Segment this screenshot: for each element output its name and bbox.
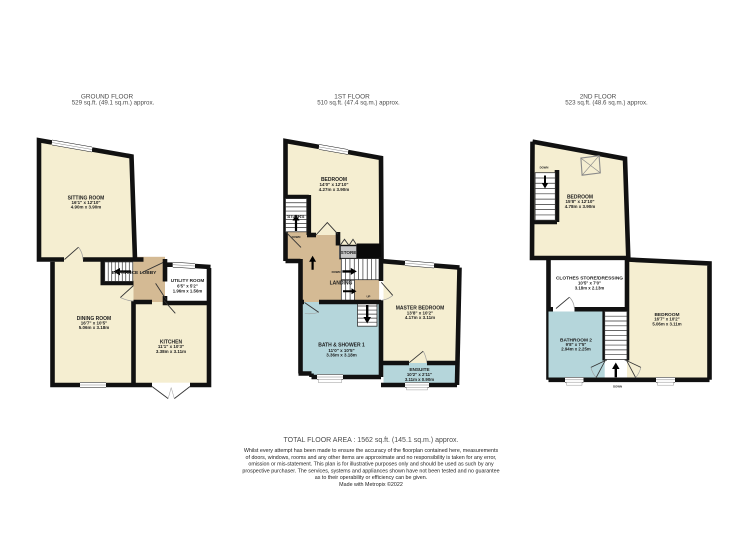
svg-text:ENTRANCE LOBBY: ENTRANCE LOBBY [112, 270, 158, 276]
svg-text:4.17m x 3.11m: 4.17m x 3.11m [405, 315, 435, 320]
svg-text:Whilst every attempt has been: Whilst every attempt has been made to en… [244, 448, 499, 454]
svg-text:3.38m x 3.11m: 3.38m x 3.11m [156, 349, 186, 354]
svg-text:UTILITY ROOM: UTILITY ROOM [171, 278, 205, 283]
svg-text:DOWN: DOWN [332, 270, 341, 274]
svg-text:TOTAL FLOOR AREA : 1562 sq.ft.: TOTAL FLOOR AREA : 1562 sq.ft. (145.1 sq… [284, 437, 459, 444]
svg-text:4.90m x 3.90m: 4.90m x 3.90m [71, 205, 102, 210]
svg-text:STAIRS: STAIRS [287, 214, 305, 220]
svg-text:529 sq.ft. (49.1 sq.m.) approx: 529 sq.ft. (49.1 sq.m.) approx. [72, 100, 155, 107]
svg-text:Made with Metropix ©2022: Made with Metropix ©2022 [339, 481, 403, 488]
svg-text:3.36m x 3.18m: 3.36m x 3.18m [326, 353, 357, 358]
svg-text:DOWN: DOWN [613, 385, 622, 389]
svg-text:DOWN: DOWN [540, 165, 549, 169]
svg-text:as to their operability or eff: as to their operability or efficiency ca… [315, 475, 427, 481]
svg-text:2.94m x 2.25m: 2.94m x 2.25m [561, 346, 591, 351]
svg-text:3.11m x 0.90m: 3.11m x 0.90m [405, 377, 434, 382]
svg-text:5.06m x 3.11m: 5.06m x 3.11m [652, 321, 681, 326]
svg-text:523 sq.ft. (48.6 sq.m.) approx: 523 sq.ft. (48.6 sq.m.) approx. [565, 100, 648, 107]
svg-text:STORE: STORE [341, 250, 357, 255]
svg-text:LANDING: LANDING [330, 281, 353, 287]
svg-text:3.18m x 2.13m: 3.18m x 2.13m [575, 286, 605, 291]
svg-text:4.78m x 3.90m: 4.78m x 3.90m [565, 204, 596, 209]
svg-text:prospective purchaser. The ser: prospective purchaser. The services, sys… [242, 468, 499, 474]
svg-text:omission or mis-statement. Thi: omission or mis-statement. This plan is … [248, 462, 494, 468]
svg-text:1.96m x 1.56m: 1.96m x 1.56m [173, 289, 203, 294]
svg-text:DOWN: DOWN [292, 235, 301, 239]
svg-text:510 sq.ft. (47.4 sq.m.) approx: 510 sq.ft. (47.4 sq.m.) approx. [317, 100, 400, 107]
svg-text:of doors, windows, rooms and a: of doors, windows, rooms and any other i… [246, 455, 497, 461]
svg-text:5.06m x 3.18m: 5.06m x 3.18m [79, 325, 110, 330]
svg-text:UP: UP [366, 295, 370, 299]
svg-text:4.27m x 3.90m: 4.27m x 3.90m [319, 187, 350, 192]
